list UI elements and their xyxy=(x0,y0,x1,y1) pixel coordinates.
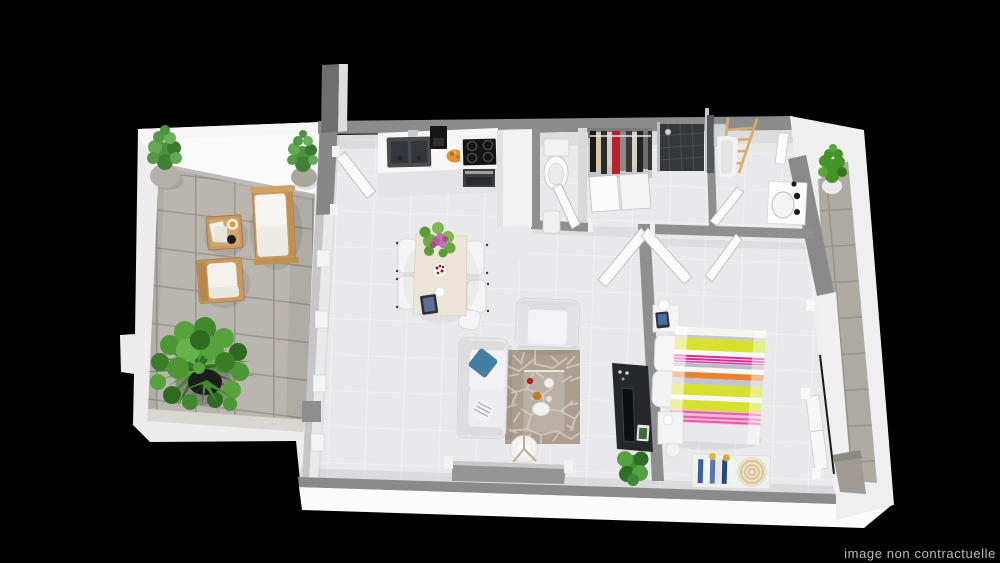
svg-text:image non contractuelle: image non contractuelle xyxy=(844,546,996,561)
